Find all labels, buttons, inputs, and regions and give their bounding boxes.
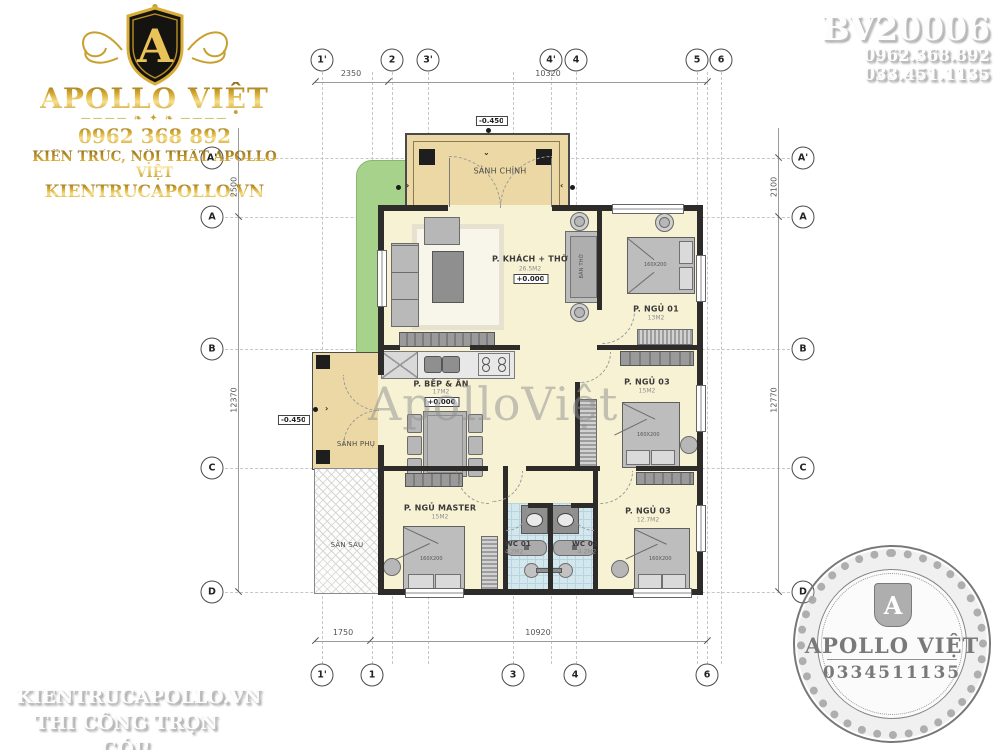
footer-tagline: THI CÔNG TRỌN GÓI! <box>16 710 236 750</box>
window <box>377 250 387 307</box>
dining-chair <box>407 436 422 455</box>
grid-line-vertical <box>707 72 708 664</box>
room-area-bed03b: 12.7M2 <box>637 517 659 524</box>
grid-bubble-3: 3 <box>502 664 525 687</box>
wall-segment <box>378 345 400 350</box>
bed03m-size-label: 160X200 <box>637 432 660 438</box>
level-tag-front: -0.450 <box>476 116 508 126</box>
window <box>696 255 706 302</box>
window <box>696 505 706 552</box>
grid-bubble-A: A <box>792 206 815 229</box>
altar-stool-top <box>570 212 589 231</box>
grid-bubble-C: C <box>201 457 224 480</box>
room-area-wc1: 4.2M2 <box>505 549 524 556</box>
porch-side-dot-left <box>396 185 401 190</box>
company-stamp: A APOLLO VIỆT 0334511135 <box>793 545 991 743</box>
project-phone-1: 0962.368.892 <box>822 46 990 65</box>
grid-bubble-6: 6 <box>696 664 719 687</box>
altar-stool-bottom <box>570 303 589 322</box>
dimension-line <box>315 641 707 642</box>
ottoman-bed03m <box>680 436 698 454</box>
porch-side-arrow-right: ‹ <box>560 181 563 190</box>
stove <box>478 353 510 376</box>
porch-side-arrow-left: › <box>406 181 409 190</box>
room-label-living: P. KHÁCH + THỜ <box>492 255 568 264</box>
wall-segment <box>470 345 520 350</box>
logo-ornament-rule: ———— ❧ ✦ ❧ ———— <box>12 115 297 123</box>
backyard <box>314 468 383 594</box>
logo-phone: 0962 368 892 <box>12 124 297 148</box>
kitchen-corner-unit <box>381 351 419 379</box>
grid-bubble-1': 1' <box>311 49 334 72</box>
side-porch-column-bottom <box>316 450 330 464</box>
brand-logo: A APOLLO VIỆT ———— ❧ ✦ ❧ ———— 0962 368 8… <box>12 2 297 202</box>
bed03b-size-label: 160X200 <box>649 556 672 562</box>
master-bed-size-label: 160X200 <box>420 556 443 562</box>
room-label-bed03m: P. NGỦ 03 <box>624 378 670 387</box>
grid-bubble-3': 3' <box>417 49 440 72</box>
room-area-master: 15M2 <box>432 514 449 521</box>
room-label-wc1: WC 01 <box>505 540 531 548</box>
wall-segment <box>636 466 703 471</box>
dimension-line <box>778 128 779 592</box>
grid-bubble-4': 4' <box>540 49 563 72</box>
room-label-wc2: WC 02 <box>572 540 598 548</box>
wall-segment <box>528 503 548 508</box>
footer-website: KIENTRUCAPOLLO.VN <box>16 684 236 710</box>
dresser-bed03m <box>620 351 694 366</box>
wall-segment <box>378 305 384 375</box>
side-porch-column-top <box>316 355 330 369</box>
dimension-label: 1750 <box>333 628 353 637</box>
room-label-bed03b: P. NGỦ 03 <box>625 507 671 516</box>
dresser-master <box>405 473 463 487</box>
room-label-porch: SẢNH CHÍNH <box>473 167 526 176</box>
stamp-divider <box>827 659 957 660</box>
logo-title: APOLLO VIỆT <box>12 82 297 115</box>
wall-segment <box>697 205 703 255</box>
footer-block: KIENTRUCAPOLLO.VN THI CÔNG TRỌN GÓI! <box>16 684 236 750</box>
project-phone-2: 033.451.1135 <box>822 65 990 84</box>
grid-bubble-4: 4 <box>564 664 587 687</box>
room-label-sideporch: SẢNH PHỤ <box>337 440 375 448</box>
bedside-stool-01 <box>655 213 674 232</box>
window <box>405 588 464 598</box>
room-area-living: 26.5M2 <box>519 266 541 273</box>
sink-left <box>424 356 442 373</box>
altar-label: BÀN THỜ <box>579 254 585 279</box>
room-label-master: P. NGỦ MASTER <box>404 504 476 513</box>
grid-bubble-5: 5 <box>686 49 709 72</box>
svg-text:A: A <box>136 19 174 73</box>
dimension-line <box>315 82 707 83</box>
grid-bubble-C: C <box>792 457 815 480</box>
room-area-bed03m: 15M2 <box>639 388 656 395</box>
sink-right <box>442 356 460 373</box>
wall-segment <box>597 205 602 310</box>
dimension-label: 2350 <box>341 69 361 78</box>
ottoman-master <box>383 558 401 576</box>
stamp-title: APOLLO VIỆT <box>793 633 991 658</box>
wall-segment <box>378 205 448 211</box>
wall-segment <box>552 205 612 211</box>
grid-bubble-4: 4 <box>565 49 588 72</box>
dimension-label: 2100 <box>770 177 779 197</box>
stamp-shield-icon: A <box>874 583 912 627</box>
logo-shield-icon: A <box>60 2 250 88</box>
wall-segment <box>697 300 703 385</box>
porch-marker-dot <box>486 128 491 133</box>
grid-bubble-6: 6 <box>710 49 733 72</box>
dining-chair <box>468 436 483 455</box>
dimension-label: 12770 <box>770 387 779 412</box>
stamp-number: 0334511135 <box>793 663 991 683</box>
room-area-bed01: 13M2 <box>648 315 665 322</box>
room-area-wc2: 4.2M2 <box>578 549 597 556</box>
bed01-size-label: 160X200 <box>644 262 667 268</box>
grid-bubble-D: D <box>201 581 224 604</box>
level-tag-living: +0.000 <box>513 274 548 284</box>
floor-plan-sheet: 1'23'4'4561'1346A'ABCDA'ABCD235010320175… <box>0 0 1000 750</box>
side-marker-dot <box>313 407 318 412</box>
armchair <box>424 217 460 245</box>
wall-segment <box>378 205 384 250</box>
room-label-bed01: P. NGỦ 01 <box>633 305 679 314</box>
window <box>612 204 684 214</box>
wall-segment <box>526 466 600 471</box>
grid-line-vertical <box>721 72 722 664</box>
grid-bubble-A: A <box>201 206 224 229</box>
logo-subtitle: KIẾN TRÚC, NỘI THẤT APOLLO VIỆT <box>12 149 297 181</box>
grid-bubble-1: 1 <box>361 664 384 687</box>
grid-bubble-1': 1' <box>311 664 334 687</box>
dresser-bed03b <box>636 472 694 485</box>
grid-bubble-B: B <box>792 338 815 361</box>
logo-website: KIENTRUCAPOLLO.VN <box>12 182 297 202</box>
porch-chevron: ⌄ <box>483 148 490 157</box>
window <box>696 385 706 432</box>
side-marker-arrow: › <box>325 404 328 413</box>
ottoman-bed03b <box>611 560 629 578</box>
room-label-backyard: SÂN SAU <box>331 541 364 549</box>
watermark: ApolloViệt <box>368 377 628 431</box>
wardrobe-bedroom01 <box>637 329 693 345</box>
level-tag-side: -0.450 <box>278 415 310 425</box>
wardrobe-master <box>481 536 498 590</box>
wall-segment <box>597 345 703 350</box>
grid-bubble-A': A' <box>792 147 815 170</box>
wall-segment <box>548 503 553 592</box>
grid-bubble-2: 2 <box>381 49 404 72</box>
project-code: BV20006 <box>822 12 990 46</box>
porch-column-left <box>419 149 435 165</box>
dimension-label: 12370 <box>230 387 239 412</box>
sofa <box>391 243 419 327</box>
window <box>633 588 692 598</box>
porch-side-dot-right <box>570 185 575 190</box>
project-code-block: BV20006 0962.368.892 033.451.1135 <box>822 12 990 84</box>
wall-segment <box>378 589 405 595</box>
dimension-label: 10920 <box>525 628 550 637</box>
coffee-table <box>432 251 464 303</box>
grid-bubble-B: B <box>201 338 224 361</box>
